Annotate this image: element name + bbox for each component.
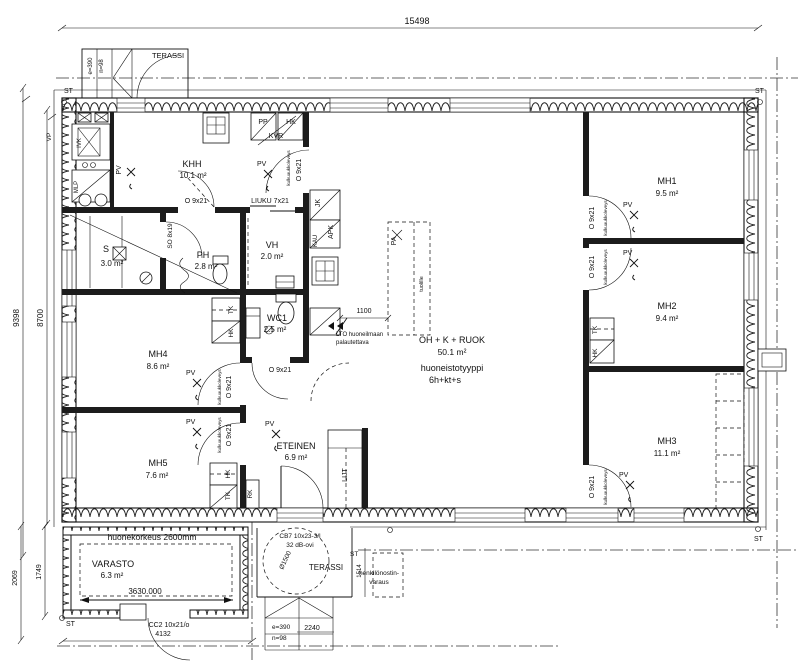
door-cb7: CB7 10x23-3/l <box>279 533 321 540</box>
door-cc2: CC2 10x21/o <box>149 622 190 629</box>
windows <box>62 98 786 522</box>
label-hk-top: HK <box>286 119 296 126</box>
label-tk-mh4: TK <box>228 305 235 314</box>
label-hk-mh5: HK <box>225 469 232 479</box>
label-st-br: ST <box>754 536 764 543</box>
door-o9x21-mh4: O 9x21 <box>226 376 233 399</box>
dim-left-inner: 8700 <box>36 309 45 327</box>
door-so8x19-sauna: SO 8x19 <box>167 223 174 249</box>
label-st-tr: ST <box>755 88 765 95</box>
door-o9x21-mh5: O 9x21 <box>226 424 233 447</box>
label-vp: VP <box>46 133 53 142</box>
room-label-eteinen: ETEINEN <box>276 441 315 451</box>
door-opening-note-2: kulkuaukkoleveys <box>603 200 608 236</box>
room-area-vh: 2.0 m² <box>261 252 284 261</box>
room-area-ph: 2.8 m² <box>195 262 218 271</box>
door-o9x21-khh: O 9x21 <box>185 198 208 205</box>
room-area-eteinen: 6.9 m² <box>285 453 308 462</box>
door-opening-note-5: kulkuaukkoleveys <box>217 369 222 405</box>
room-area-wc1: 2.5 m² <box>264 325 287 334</box>
label-apk: APK <box>328 225 335 239</box>
label-tk-mh5: TK <box>225 491 232 500</box>
label-jk: JK <box>315 199 322 208</box>
door-o9x21-wc1: O 9x21 <box>269 367 292 374</box>
room-area-khh: 10.1 m² <box>179 171 206 180</box>
label-kvr: KVR <box>269 133 283 140</box>
label-pv-eteinen: PV <box>265 421 275 428</box>
dim-kitchen: 1100 <box>356 308 371 315</box>
dimension-lines <box>18 25 762 644</box>
floor-plan-page: 15498 9398 8700 2069 1749 1100 1514 3630… <box>0 0 800 662</box>
label-hk-mh2: HK <box>592 348 599 358</box>
interior-walls <box>62 112 744 508</box>
label-hk-mh4: HK <box>228 328 235 338</box>
label-lijt: LIJT <box>342 467 349 481</box>
label-lto-2: palautettava <box>336 340 369 346</box>
door-cb7-note: 32 dB-ovi <box>286 542 313 549</box>
label-pp: PP <box>258 119 268 126</box>
room-area-mh4: 8.6 m² <box>147 362 170 371</box>
door-liuku: LIUKU 7x21 <box>251 198 289 205</box>
door-o9x21-mh1: O 9x21 <box>589 207 596 230</box>
room-label-mh1: MH1 <box>657 176 676 186</box>
fixtures <box>70 113 744 508</box>
label-pv-mh1: PV <box>623 202 633 209</box>
label-pv-mh3: PV <box>619 472 629 479</box>
ceiling-height-note: huonekorkeus 2600mm <box>108 532 197 542</box>
label-ivk: IVK <box>77 138 83 148</box>
label-pv-mh5: PV <box>186 419 196 426</box>
label-pv-mh4: PV <box>186 370 196 377</box>
label-pv-khh: PV <box>116 165 123 175</box>
living-room-label: OH + K + RUOK <box>419 335 485 345</box>
room-label-ph: PH <box>197 250 210 260</box>
door-o9x21-mh3: O 9x21 <box>589 476 596 499</box>
label-lto-1: LTO huoneilmaan <box>336 332 383 338</box>
label-lift-reservation-2: varaus <box>369 579 389 586</box>
room-area-mh5: 7.6 m² <box>146 471 169 480</box>
apartment-type-label: huoneistotyyppi <box>421 363 484 373</box>
dim-lift-circle: Ø1500 <box>278 550 293 571</box>
room-label-vh: VH <box>266 240 279 250</box>
floor-plan-drawing: 15498 9398 8700 2069 1749 1100 1514 3630… <box>0 0 800 662</box>
label-st-bl: ST <box>66 621 76 628</box>
door-opening-note-1: kulkuaukkoleveys <box>286 150 291 186</box>
door-opening-note-4: kulkuaukkoleveys <box>603 469 608 505</box>
door-opening-note-3: kulkuaukkoleveys <box>603 249 608 285</box>
label-lift-reservation-1: henkilönostin- <box>359 570 399 577</box>
room-label-wc1: WC1 <box>267 313 287 323</box>
room-label-khh: KHH <box>182 159 201 169</box>
living-room-area: 50.1 m² <box>438 347 467 357</box>
room-label-varasto: VARASTO <box>92 559 134 569</box>
label-pa: PA <box>391 236 398 245</box>
exterior-vent-box <box>758 349 786 371</box>
room-label-s: S <box>103 244 109 254</box>
label-mlp: MLP <box>74 181 80 193</box>
label-tk-mh2: TK <box>592 325 599 334</box>
room-area-varasto: 6.3 m² <box>101 571 124 580</box>
label-terassi-top: TERASSI <box>152 51 184 60</box>
door-o9x21-mh2: O 9x21 <box>589 256 596 279</box>
dim-terrace: 2240 <box>304 625 320 632</box>
dim-varasto-door: 4132 <box>155 631 171 638</box>
room-label-mh3: MH3 <box>657 436 676 446</box>
dim-bl-outer: 2069 <box>12 570 19 586</box>
dim-top: 15498 <box>404 16 429 26</box>
label-n98-bottom: n=98 <box>272 635 287 642</box>
apartment-type-value: 6h+kt+s <box>429 375 462 385</box>
room-area-s: 3.0 m² <box>101 259 124 268</box>
label-pa-note: tuolille <box>419 276 425 292</box>
label-e390-top: e=390 <box>88 57 94 75</box>
room-area-mh1: 9.5 m² <box>656 189 679 198</box>
label-n98-top: n=98 <box>99 59 105 73</box>
label-kau: KAU <box>313 235 319 247</box>
room-label-mh5: MH5 <box>148 458 167 468</box>
room-label-mh4: MH4 <box>148 349 167 359</box>
label-rk: RK <box>247 489 254 499</box>
dim-varasto: 3630.000 <box>128 587 162 596</box>
label-pv-mh2: PV <box>623 250 633 257</box>
door-opening-note-6: kulkuaukkoleveys <box>217 417 222 453</box>
label-e390-bottom: e=390 <box>272 624 291 631</box>
label-terassi-bottom: TERASSI <box>309 563 343 572</box>
terrace-bottom <box>257 528 403 650</box>
room-area-mh3: 11.1 m² <box>654 449 681 458</box>
label-st-tl: ST <box>64 88 74 95</box>
room-label-mh2: MH2 <box>657 301 676 311</box>
dim-left-outer: 9398 <box>12 309 21 327</box>
label-pv-kitchen: PV <box>257 161 267 168</box>
dim-bl-inner: 1749 <box>36 564 43 580</box>
room-area-mh2: 9.4 m² <box>656 314 679 323</box>
door-o9x21-kitchen: O 9x21 <box>296 159 303 182</box>
label-st-terrace: ST <box>350 551 358 558</box>
